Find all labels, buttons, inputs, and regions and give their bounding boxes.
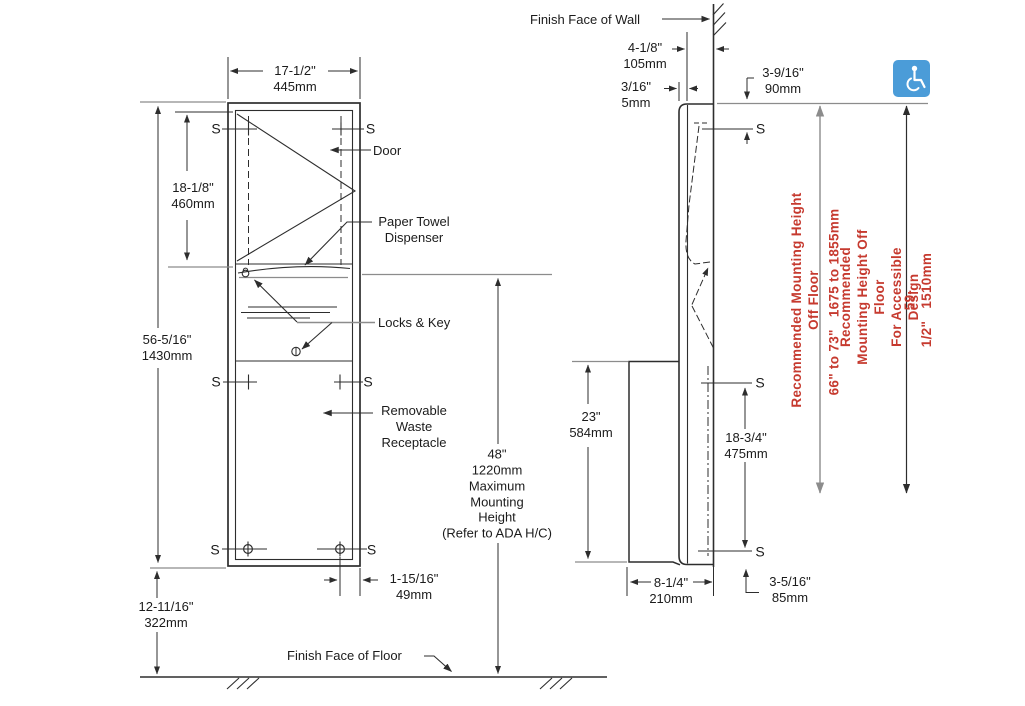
dim-fastener-span: 18-3/4" 475mm <box>724 430 767 462</box>
dim-top-to-fastener: 3-9/16" 90mm <box>762 65 803 97</box>
fastener-marker: S <box>755 543 764 560</box>
front-dimension-lines <box>157 57 498 674</box>
side-view-wall <box>713 4 726 597</box>
dim-cabinet-width: 17-1/2" 445mm <box>273 63 316 95</box>
fastener-marker: S <box>366 120 375 137</box>
dim-receptacle-height: 23" 584mm <box>569 409 612 441</box>
label-paper-towel-dispenser: Paper Towel Dispenser <box>378 214 449 246</box>
dim-door-height: 18-1/8" 460mm <box>171 180 214 212</box>
side-view-cabinet <box>629 104 714 565</box>
label-door: Door <box>373 143 401 159</box>
label-removable-waste-receptacle: Removable Waste Receptacle <box>381 403 447 451</box>
dim-projection: 4-1/8" 105mm <box>623 40 666 72</box>
dim-receptacle-depth: 8-1/4" 210mm <box>649 575 692 607</box>
label-locks-and-key: Locks & Key <box>378 315 450 331</box>
installation-drawing: 17-1/2" 445mm 18-1/8" 460mm 56-5/16" 143… <box>0 0 1025 706</box>
fastener-marker: S <box>211 373 220 390</box>
dim-hole-inset: 1-15/16" 49mm <box>390 571 439 603</box>
fastener-marker: S <box>755 374 764 391</box>
key-cylinder-symbol <box>292 347 300 355</box>
dim-maximum-mounting-height: 48" 1220mm Maximum Mounting Height (Refe… <box>442 446 552 541</box>
fastener-marker: S <box>367 541 376 558</box>
fastener-marker: S <box>756 120 765 137</box>
side-dimension-lines <box>588 32 759 596</box>
front-leader-lines <box>255 19 710 672</box>
dim-floor-offset: 12-11/16" 322mm <box>139 599 194 631</box>
accessibility-icon <box>893 60 930 97</box>
dim-overall-height: 56-5/16" 1430mm <box>142 332 193 364</box>
note-recommended-mounting-height: Recommended Mounting Height Off Floor <box>789 191 823 410</box>
fastener-marker: S <box>210 541 219 558</box>
front-view-cabinet <box>228 103 360 566</box>
floor-line <box>140 677 607 689</box>
fastener-marker: S <box>211 120 220 137</box>
note-accessible-range: 59-1/2" 1510mm <box>902 247 936 353</box>
fastener-marks-front <box>222 123 367 557</box>
dim-flange: 3/16" 5mm <box>621 79 651 111</box>
label-finish-face-of-floor: Finish Face of Floor <box>287 648 402 664</box>
fastener-marker: S <box>363 373 372 390</box>
label-finish-face-of-wall: Finish Face of Wall <box>530 12 640 28</box>
dim-bottom-to-fastener: 3-5/16" 85mm <box>769 574 810 606</box>
